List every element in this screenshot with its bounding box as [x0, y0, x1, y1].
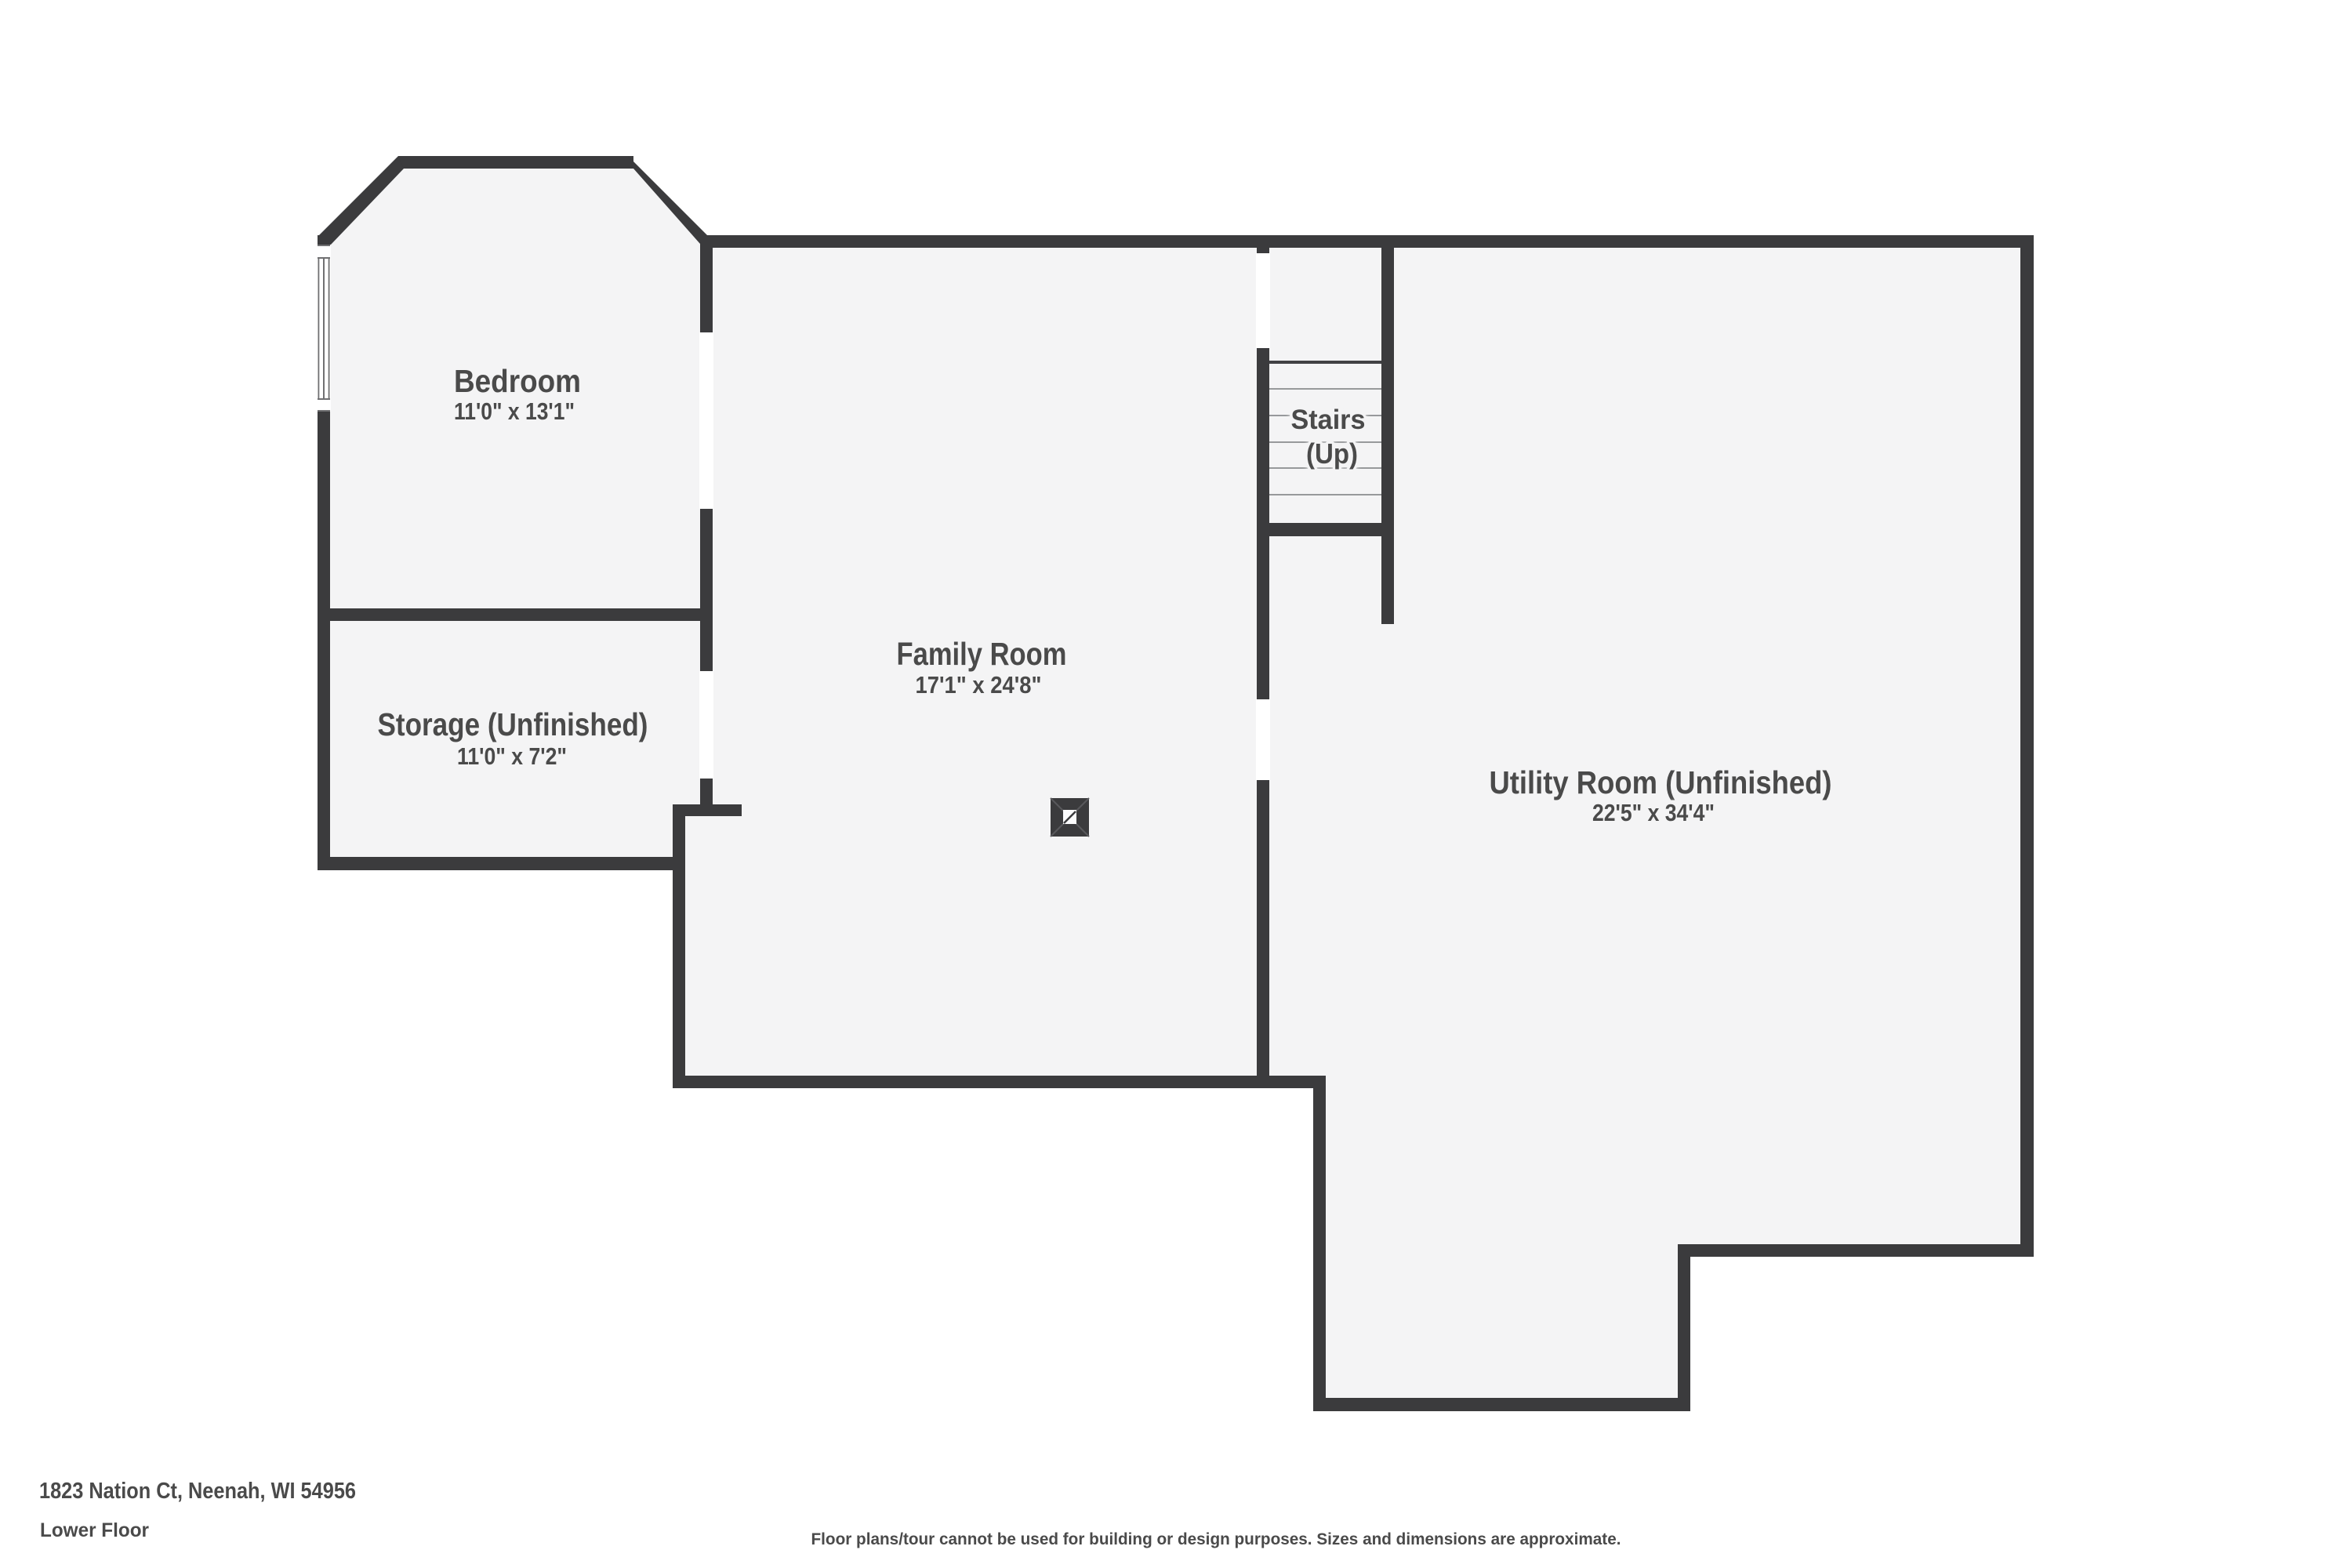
- svg-text:Storage (Unfinished): Storage (Unfinished): [378, 706, 648, 742]
- svg-text:(Up): (Up): [1306, 437, 1358, 470]
- svg-text:Stairs: Stairs: [1291, 405, 1366, 435]
- svg-text:11'0" x 7'2": 11'0" x 7'2": [457, 742, 567, 770]
- svg-text:17'1" x 24'8": 17'1" x 24'8": [916, 671, 1042, 699]
- svg-text:22'5" x 34'4": 22'5" x 34'4": [1592, 799, 1715, 826]
- svg-text:Utility Room (Unfinished): Utility Room (Unfinished): [1490, 764, 1832, 800]
- svg-text:Lower Floor: Lower Floor: [40, 1519, 149, 1541]
- svg-text:Family Room: Family Room: [897, 636, 1067, 672]
- svg-text:11'0" x 13'1": 11'0" x 13'1": [454, 397, 575, 425]
- svg-text:Bedroom: Bedroom: [454, 363, 581, 399]
- svg-text:Floor plans/tour cannot be use: Floor plans/tour cannot be used for buil…: [811, 1530, 1621, 1548]
- svg-text:1823 Nation Ct, Neenah, WI 549: 1823 Nation Ct, Neenah, WI 54956: [39, 1479, 356, 1504]
